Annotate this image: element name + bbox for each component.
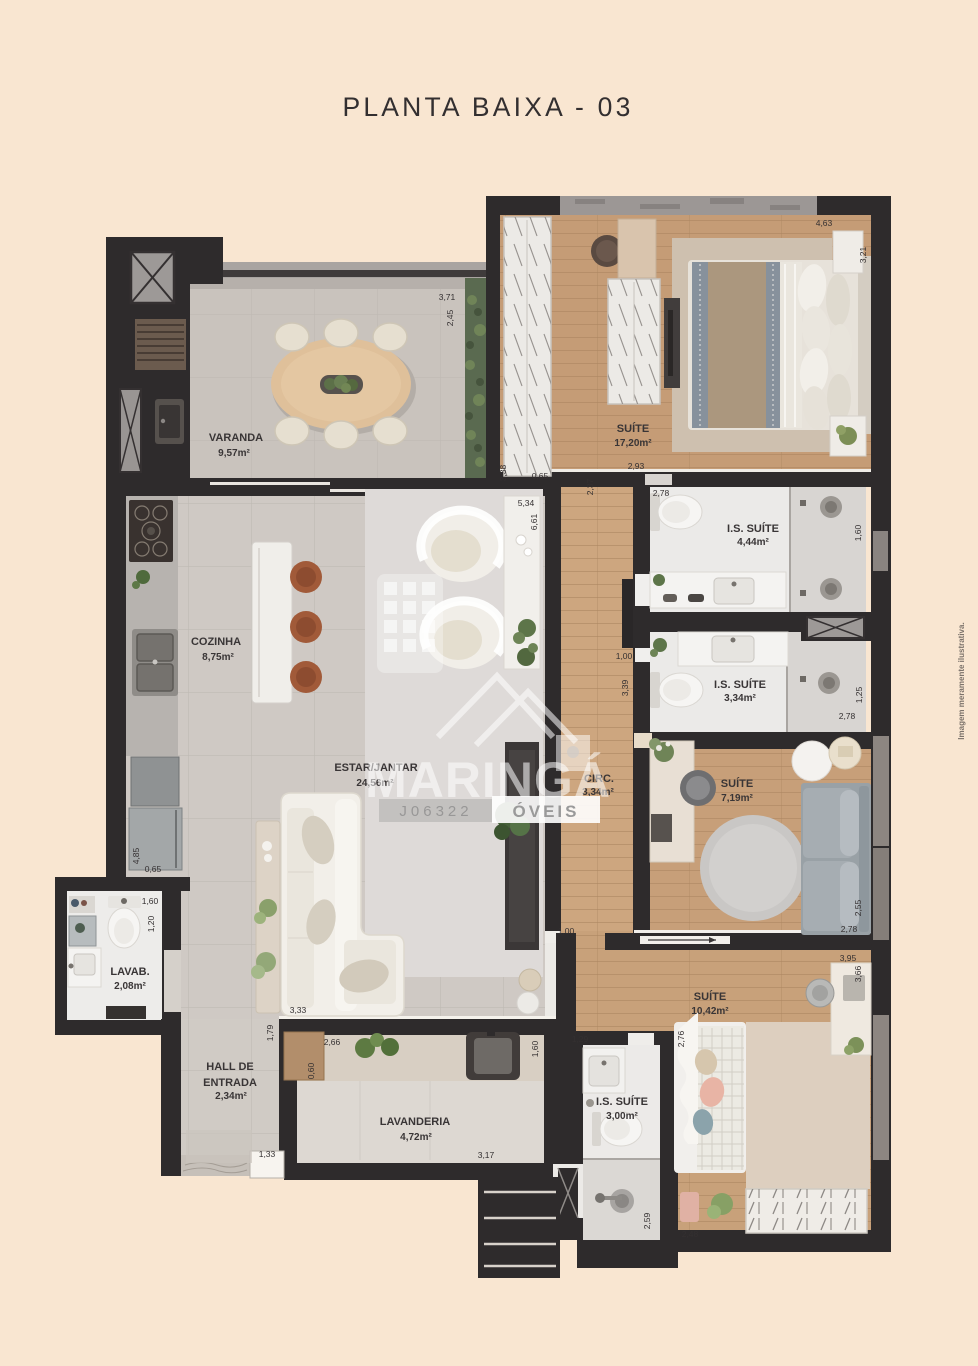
svg-text:1,60: 1,60 — [853, 524, 863, 541]
svg-text:1,79: 1,79 — [265, 1024, 275, 1041]
svg-text:ÓVEIS: ÓVEIS — [513, 802, 580, 821]
svg-text:LAVAB.: LAVAB. — [110, 966, 149, 978]
svg-text:0,65: 0,65 — [532, 471, 549, 481]
svg-text:9,57m²: 9,57m² — [218, 448, 250, 459]
svg-text:VARANDA: VARANDA — [209, 432, 263, 444]
svg-text:3,95: 3,95 — [840, 953, 857, 963]
svg-text:4,85: 4,85 — [131, 847, 141, 864]
svg-text:SUÍTE: SUÍTE — [694, 990, 726, 1003]
svg-text:ENTRADA: ENTRADA — [203, 1077, 257, 1089]
svg-text:3,21: 3,21 — [858, 246, 868, 263]
svg-text:I.S. SUÍTE: I.S. SUÍTE — [596, 1095, 648, 1108]
svg-text:3,71: 3,71 — [439, 292, 456, 302]
svg-text:SUÍTE: SUÍTE — [617, 422, 649, 435]
svg-text:3,33: 3,33 — [290, 1005, 307, 1015]
svg-text:3,38: 3,38 — [498, 464, 508, 481]
svg-text:2,37: 2,37 — [585, 478, 595, 495]
svg-text:2,78: 2,78 — [841, 924, 858, 934]
svg-text:SUÍTE: SUÍTE — [721, 777, 753, 790]
svg-text:PLANTA BAIXA - 03: PLANTA BAIXA - 03 — [342, 92, 633, 122]
svg-text:3,00m²: 3,00m² — [606, 1111, 638, 1122]
svg-text:3,34m²: 3,34m² — [724, 693, 756, 704]
svg-text:I.S. SUÍTE: I.S. SUÍTE — [727, 522, 779, 535]
svg-text:3,39: 3,39 — [620, 679, 630, 696]
svg-text:2,55: 2,55 — [853, 899, 863, 916]
svg-text:2,78: 2,78 — [839, 711, 856, 721]
svg-text:2,93: 2,93 — [628, 461, 645, 471]
svg-text:0,60: 0,60 — [306, 1062, 316, 1079]
svg-text:4,63: 4,63 — [816, 218, 833, 228]
svg-text:1,20: 1,20 — [146, 915, 156, 932]
svg-text:4,44m²: 4,44m² — [737, 537, 769, 548]
svg-text:2,45: 2,45 — [445, 309, 455, 326]
svg-text:17,20m²: 17,20m² — [614, 438, 652, 449]
svg-text:I.S. SUÍTE: I.S. SUÍTE — [714, 678, 766, 691]
svg-text:1,60: 1,60 — [142, 896, 159, 906]
svg-text:3,66: 3,66 — [853, 965, 863, 982]
svg-text:0,65: 0,65 — [145, 864, 162, 874]
svg-text:1,60: 1,60 — [530, 1040, 540, 1057]
svg-text:7,19m²: 7,19m² — [721, 793, 753, 804]
svg-text:2,66: 2,66 — [324, 1037, 341, 1047]
svg-text:2,76: 2,76 — [676, 1030, 686, 1047]
svg-text:5,34: 5,34 — [518, 498, 535, 508]
svg-text:1,00: 1,00 — [558, 926, 575, 936]
svg-text:2,59: 2,59 — [642, 1212, 652, 1229]
svg-text:8,75m²: 8,75m² — [202, 652, 234, 663]
svg-text:Imagem meramente ilustrativa.: Imagem meramente ilustrativa. — [957, 622, 966, 739]
svg-text:6,61: 6,61 — [529, 513, 539, 530]
svg-text:J06322: J06322 — [399, 803, 472, 820]
svg-text:2,48: 2,48 — [682, 1229, 699, 1239]
svg-text:2,34m²: 2,34m² — [215, 1091, 247, 1102]
svg-text:4,72m²: 4,72m² — [400, 1132, 432, 1143]
svg-text:1,00: 1,00 — [616, 651, 633, 661]
svg-text:10,42m²: 10,42m² — [691, 1006, 729, 1017]
svg-text:HALL DE: HALL DE — [206, 1061, 253, 1073]
svg-text:3,17: 3,17 — [478, 1150, 495, 1160]
svg-text:COZINHA: COZINHA — [191, 636, 241, 648]
svg-text:1,29: 1,29 — [572, 1034, 589, 1044]
svg-text:2,08m²: 2,08m² — [114, 981, 146, 992]
svg-text:1,25: 1,25 — [854, 686, 864, 703]
svg-text:LAVANDERIA: LAVANDERIA — [380, 1116, 451, 1128]
svg-text:2,78: 2,78 — [653, 488, 670, 498]
svg-text:1,33: 1,33 — [259, 1149, 276, 1159]
